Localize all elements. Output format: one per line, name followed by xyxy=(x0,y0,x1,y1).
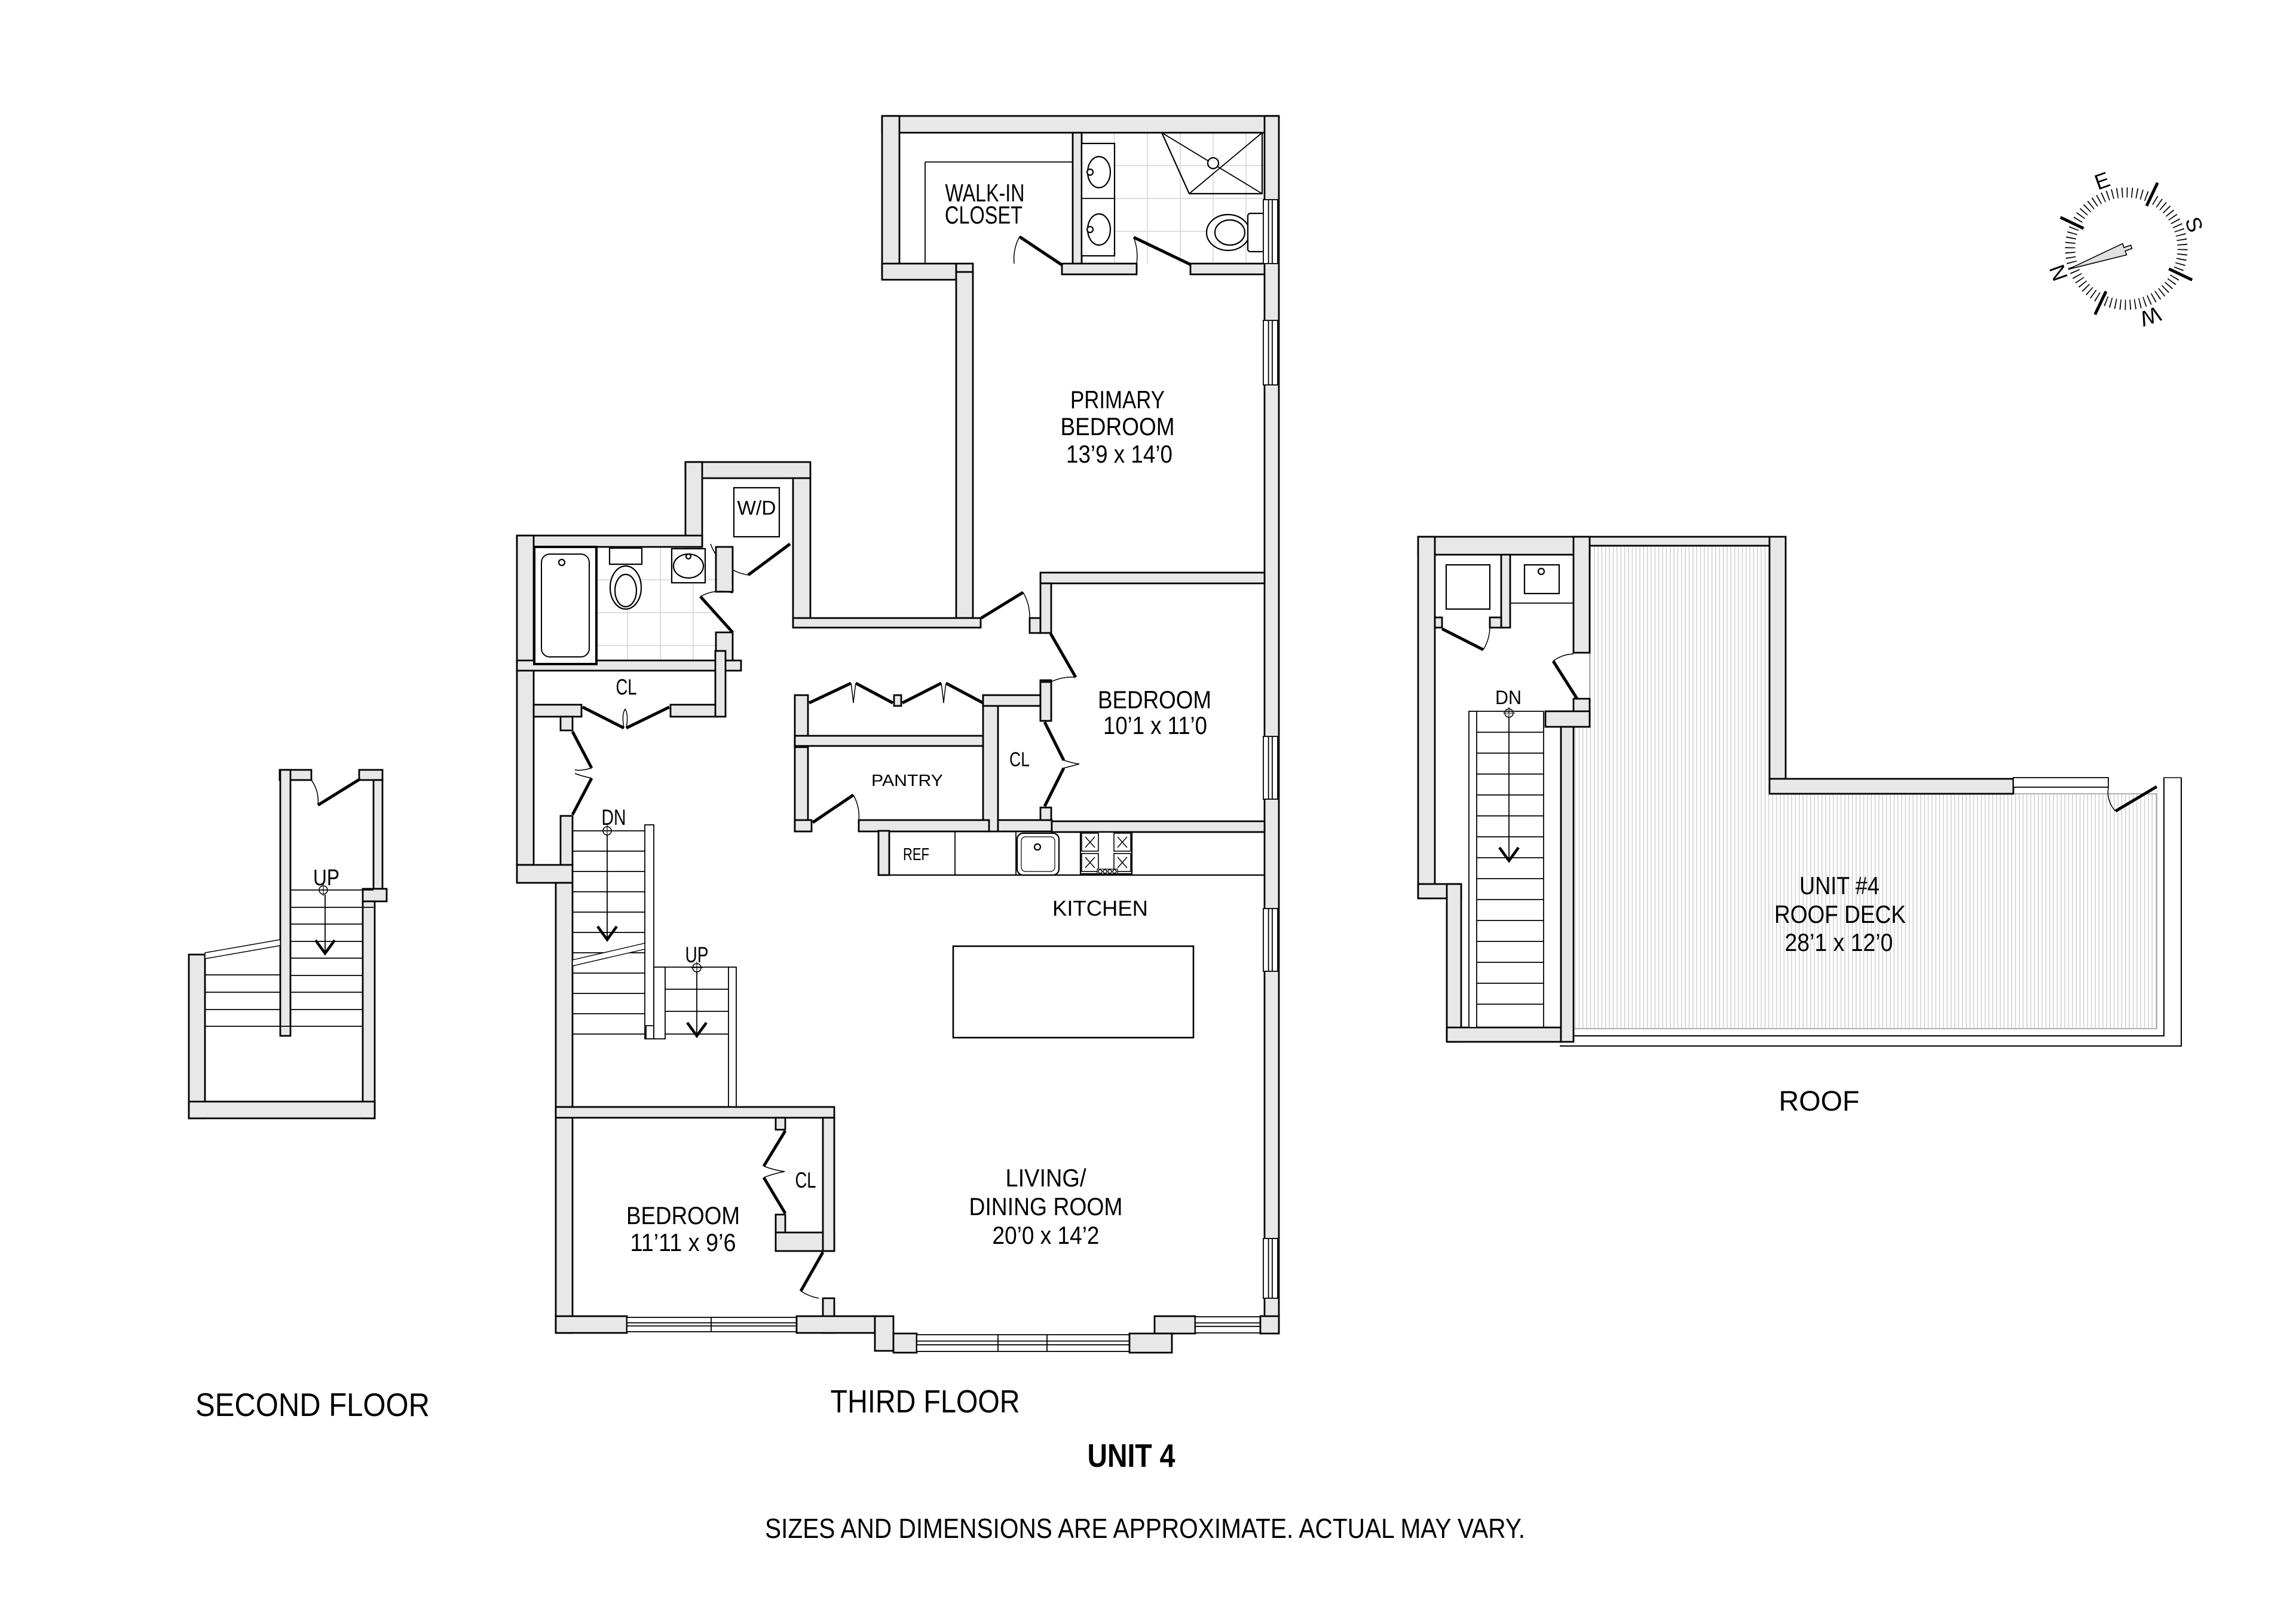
svg-text:CL: CL xyxy=(616,675,637,699)
svg-text:W/D: W/D xyxy=(737,497,776,519)
svg-text:THIRD FLOOR: THIRD FLOOR xyxy=(831,1384,1020,1420)
svg-text:CL: CL xyxy=(795,1168,816,1192)
svg-text:DN: DN xyxy=(602,805,626,830)
svg-text:BEDROOM: BEDROOM xyxy=(626,1201,740,1230)
svg-text:LIVING/: LIVING/ xyxy=(1006,1164,1086,1192)
svg-text:BEDROOM: BEDROOM xyxy=(1061,412,1175,441)
svg-text:DINING ROOM: DINING ROOM xyxy=(969,1192,1123,1221)
svg-text:20’0 x 14’2: 20’0 x 14’2 xyxy=(993,1221,1100,1249)
svg-text:10’1 x 11’0: 10’1 x 11’0 xyxy=(1103,711,1207,739)
svg-text:PANTRY: PANTRY xyxy=(871,771,943,790)
svg-text:KITCHEN: KITCHEN xyxy=(1052,896,1148,920)
svg-text:CLOSET: CLOSET xyxy=(945,201,1023,229)
svg-text:UNIT 4: UNIT 4 xyxy=(1088,1437,1175,1474)
svg-text:DN: DN xyxy=(1495,687,1522,708)
svg-text:BEDROOM: BEDROOM xyxy=(1098,686,1211,714)
svg-text:SECOND FLOOR: SECOND FLOOR xyxy=(195,1386,430,1423)
svg-text:UNIT #4: UNIT #4 xyxy=(1799,871,1879,900)
svg-text:CL: CL xyxy=(1009,748,1030,771)
svg-text:11’11 x 9’6: 11’11 x 9’6 xyxy=(630,1228,736,1256)
svg-text:13’9 x 14’0: 13’9 x 14’0 xyxy=(1066,440,1173,468)
svg-text:SIZES AND DIMENSIONS ARE APPRO: SIZES AND DIMENSIONS ARE APPROXIMATE. AC… xyxy=(765,1513,1525,1544)
svg-text:REF: REF xyxy=(903,845,929,864)
svg-text:PRIMARY: PRIMARY xyxy=(1070,386,1165,414)
svg-text:ROOF: ROOF xyxy=(1779,1085,1860,1117)
svg-text:28’1 x 12’0: 28’1 x 12’0 xyxy=(1785,928,1893,956)
svg-text:ROOF DECK: ROOF DECK xyxy=(1774,900,1906,928)
